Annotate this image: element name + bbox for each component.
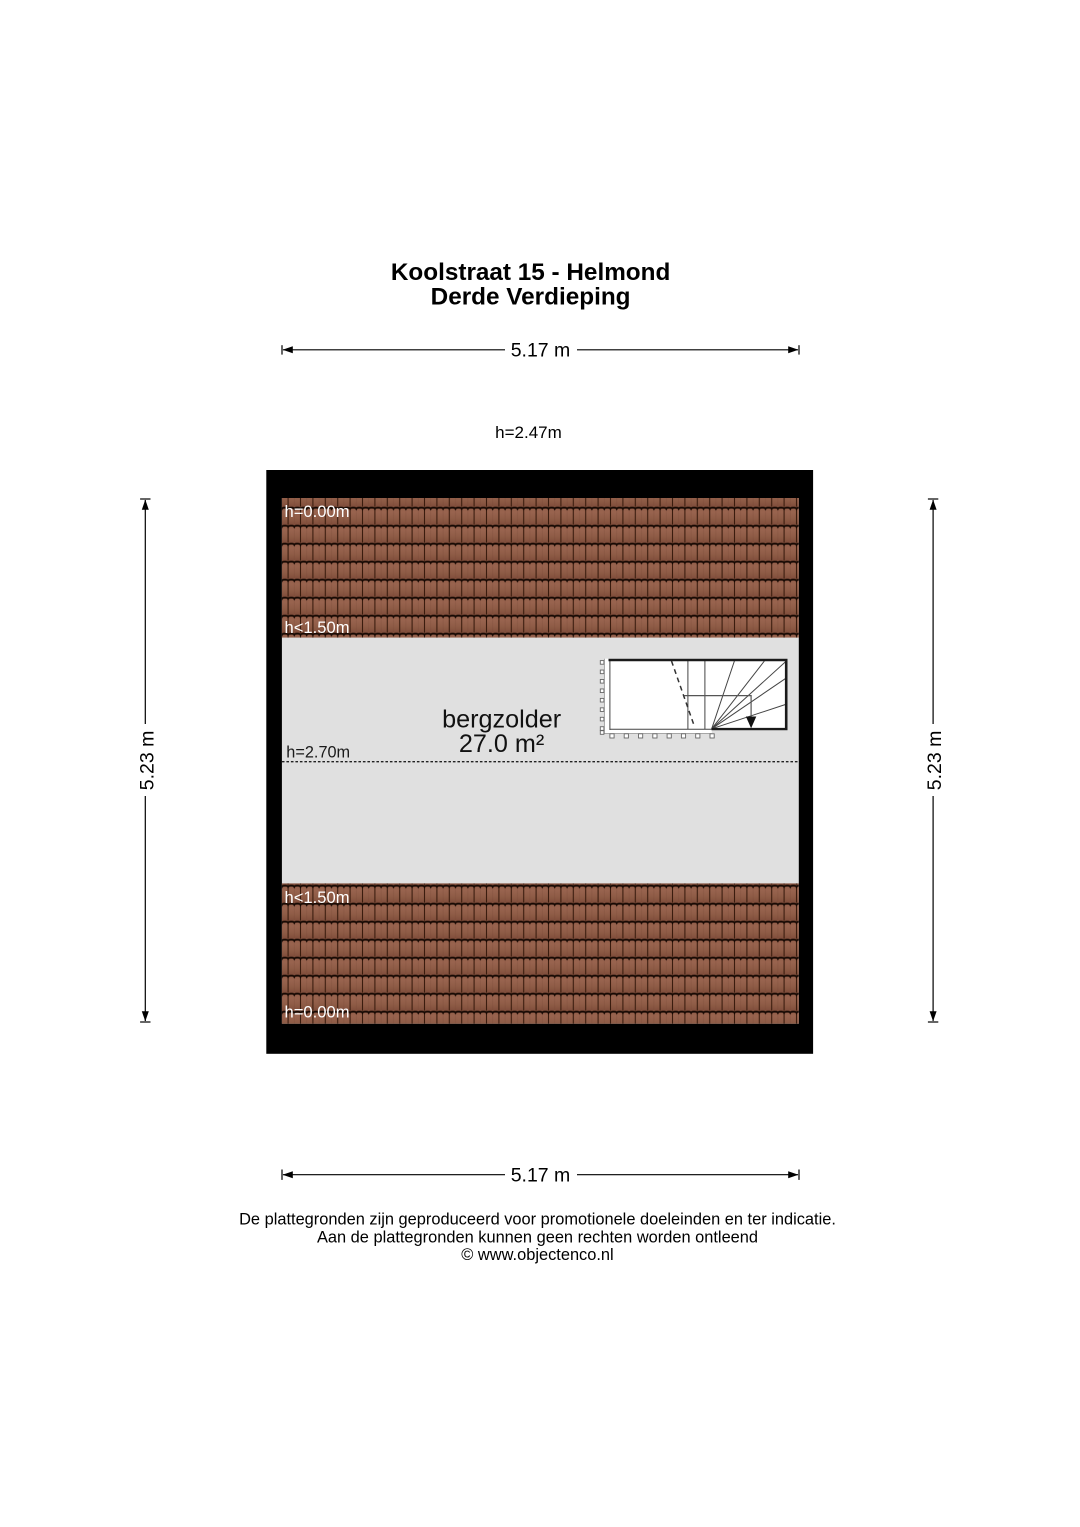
svg-text:h=2.70m: h=2.70m: [286, 744, 350, 762]
svg-text:27.0 m²: 27.0 m²: [459, 730, 544, 758]
svg-text:Derde Verdieping: Derde Verdieping: [431, 284, 631, 311]
svg-text:h=2.47m: h=2.47m: [495, 423, 562, 442]
svg-text:Aan de plattegronden kunnen ge: Aan de plattegronden kunnen geen rechten…: [317, 1229, 758, 1247]
svg-text:h=0.00m: h=0.00m: [285, 1003, 350, 1022]
svg-text:© www.objectenco.nl: © www.objectenco.nl: [461, 1246, 613, 1264]
svg-text:h<1.50m: h<1.50m: [285, 618, 350, 637]
svg-text:5.17 m: 5.17 m: [511, 1165, 571, 1187]
svg-text:5.23 m: 5.23 m: [924, 731, 946, 791]
svg-text:De plattegronden zijn geproduc: De plattegronden zijn geproduceerd voor …: [239, 1211, 836, 1229]
svg-text:5.23 m: 5.23 m: [136, 731, 158, 791]
svg-text:5.17 m: 5.17 m: [511, 339, 571, 361]
svg-text:h=0.00m: h=0.00m: [285, 502, 350, 521]
svg-text:h<1.50m: h<1.50m: [285, 888, 350, 907]
svg-text:Koolstraat 15 - Helmond: Koolstraat 15 - Helmond: [391, 259, 670, 286]
